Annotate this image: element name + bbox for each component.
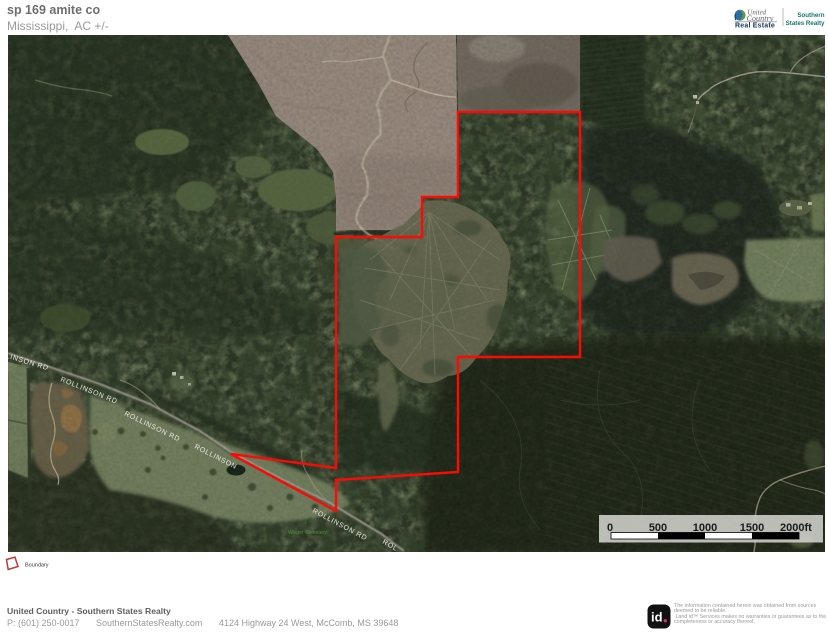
svg-text:Real Estate: Real Estate [735,23,775,30]
svg-text:id: id [651,610,663,625]
svg-text:States Realty: States Realty [786,20,825,27]
svg-text:Southern: Southern [797,12,824,19]
svg-text:Boundary: Boundary [25,563,49,569]
svg-text:Wacter Cemetery: Wacter Cemetery [288,530,327,536]
